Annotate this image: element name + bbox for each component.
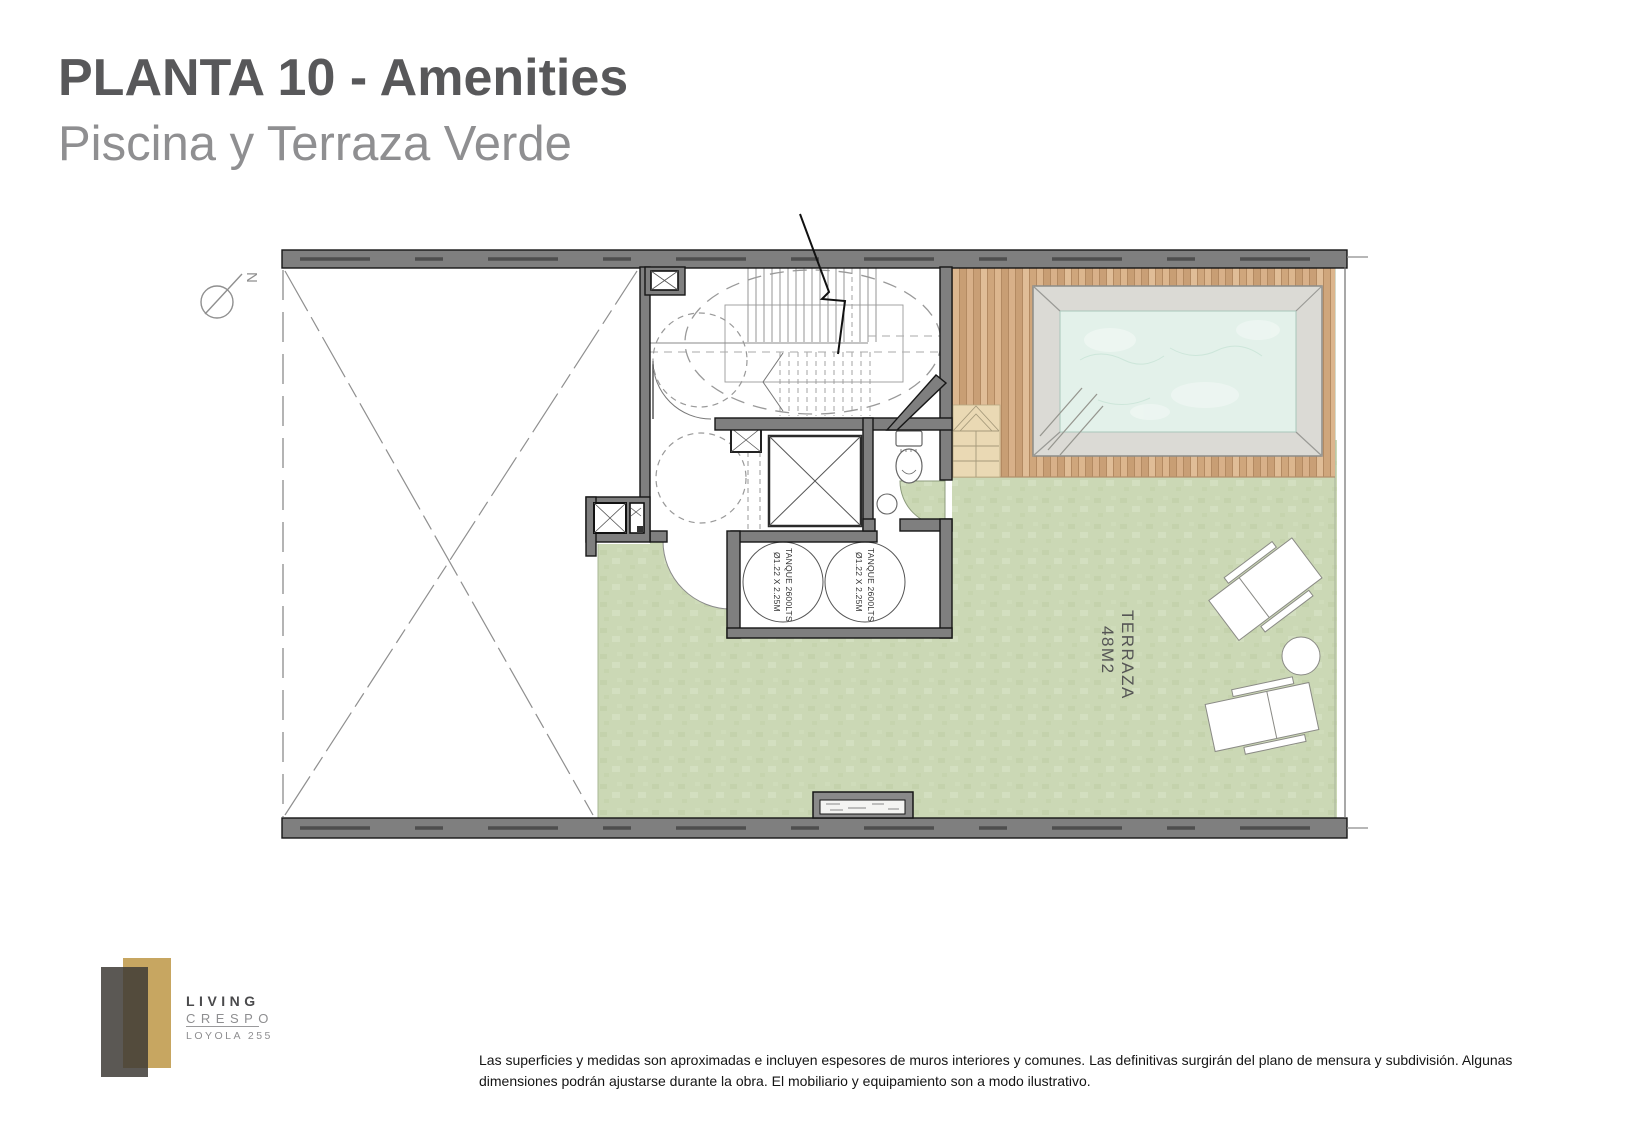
disclaimer-line2: dimensiones podrán ajustarse durante la … [479,1071,1624,1092]
disclaimer: Las superficies y medidas son aproximada… [479,1050,1624,1092]
tank2-label-line1: TANQUE 2600LTS [866,548,876,622]
duct-shaft [731,428,761,452]
toilet [896,431,922,483]
tank2-label-line2: Ø1.22 X 2.25M [854,552,864,612]
north-label: N [243,272,260,283]
basin [877,494,897,514]
logo-divider [186,1026,259,1027]
logo-address: LOYOLA 255 [186,1030,273,1042]
north-arrow [201,274,242,318]
terrace-label-name: TERRAZA [1118,610,1137,700]
stair-room [648,267,952,430]
vent-grille [813,792,913,818]
logo-dark-bar [101,967,148,1077]
plot-boundary [1345,257,1368,828]
floor-plan: N [0,0,1625,1125]
logo-brand: LIVING [186,993,260,1009]
logo-subbrand: CRESPO [186,1011,274,1026]
tank1-label-line2: Ø1.22 X 2.25M [772,552,782,612]
terrace-label-area: 48M2 [1098,626,1117,675]
disclaimer-line1: Las superficies y medidas son aproximada… [479,1050,1624,1071]
deck-steps [953,405,1000,477]
pool [1033,286,1322,456]
tank1-label-line1: TANQUE 2600LTS [784,548,794,622]
side-table [1282,637,1320,675]
